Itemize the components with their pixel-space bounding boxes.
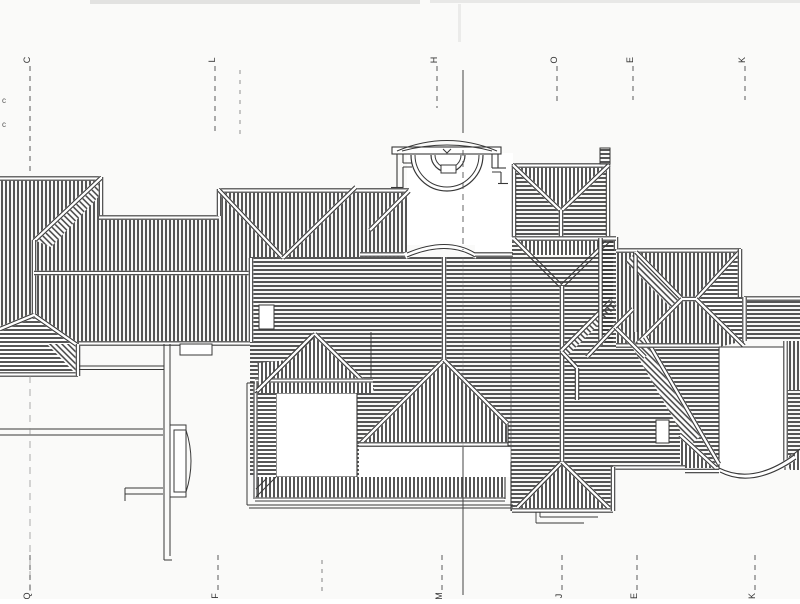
svg-text:J: J [554,594,564,599]
svg-text:L: L [207,57,217,62]
svg-text:O: O [549,56,559,63]
svg-text:C: C [22,56,32,63]
svg-text:M: M [434,592,444,599]
svg-text:F: F [210,593,220,599]
svg-text:E: E [629,593,639,599]
svg-text:K: K [747,593,757,599]
svg-text:c: c [2,96,6,105]
svg-text:E: E [625,57,635,63]
svg-text:c: c [2,120,6,129]
svg-text:K: K [737,57,747,63]
svg-text:H: H [429,57,439,64]
svg-text:Q: Q [22,592,32,599]
